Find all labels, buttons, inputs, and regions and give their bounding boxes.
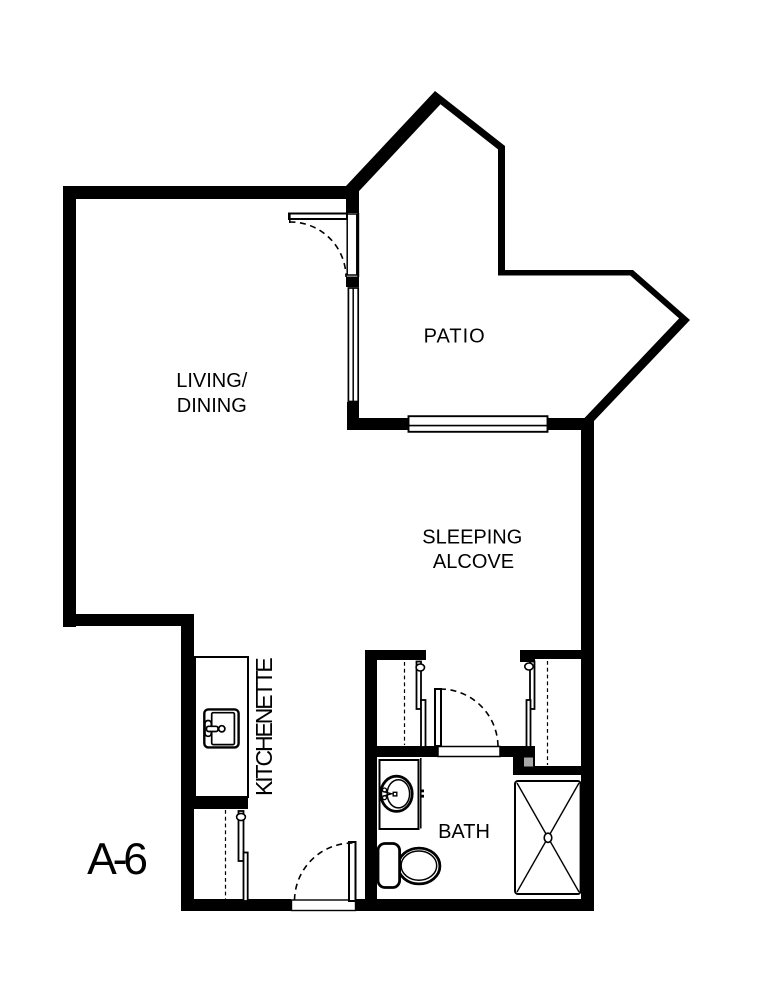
svg-text:SLEEPING: SLEEPING [422,527,522,549]
svg-text:ALCOVE: ALCOVE [433,551,514,573]
svg-text:A-6: A-6 [87,835,146,884]
svg-text:LIVING/: LIVING/ [176,370,248,392]
svg-text:DINING: DINING [177,395,247,417]
svg-text:KITCHENETTE: KITCHENETTE [251,658,277,796]
svg-text:BATH: BATH [438,821,490,843]
svg-text:PATIO: PATIO [424,326,486,348]
